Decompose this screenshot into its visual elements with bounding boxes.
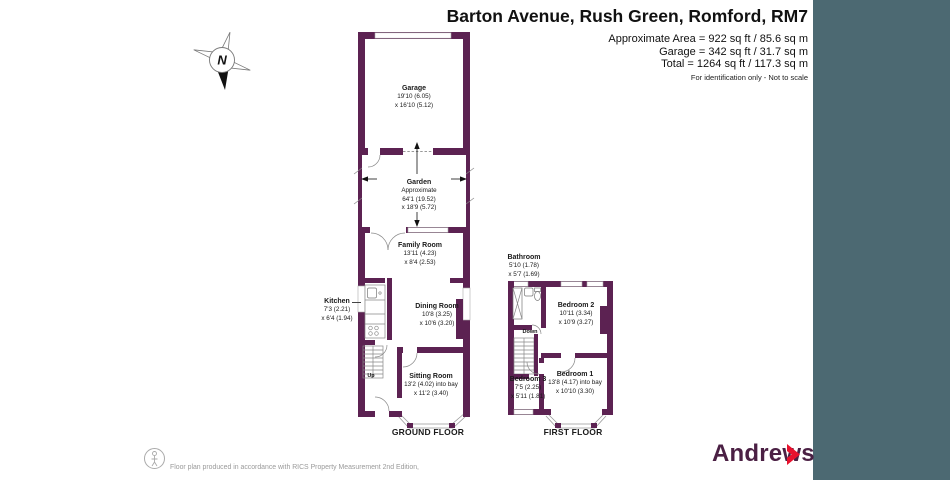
andrews-chevron-icon bbox=[787, 444, 804, 466]
first-floor-plan bbox=[503, 276, 618, 436]
rics-measurement-icon bbox=[143, 447, 166, 470]
stairs-up-label: Up bbox=[367, 373, 374, 379]
sitting-room-label: Sitting Room 13'2 (4.02) into bay x 11'2… bbox=[404, 372, 458, 398]
first-floor-caption: FIRST FLOOR bbox=[544, 427, 603, 437]
bathroom-label: Bathroom 5'10 (1.78) x 5'7 (1.69) bbox=[507, 253, 540, 279]
kitchen-leader-line bbox=[352, 302, 361, 303]
total-area: Total = 1264 sq ft / 117.3 sq m bbox=[608, 58, 808, 71]
ground-floor-caption: GROUND FLOOR bbox=[392, 427, 464, 437]
bay-window-first bbox=[544, 409, 613, 428]
bedroom3-label: Bedroom 3 7'5 (2.25) x 5'11 (1.81) bbox=[510, 375, 547, 401]
stairs-down bbox=[514, 338, 534, 374]
scale-disclaimer: For identification only - Not to scale bbox=[691, 73, 808, 82]
kitchen-units bbox=[365, 285, 385, 338]
family-room-label: Family Room 13'11 (4.23) x 8'4 (2.53) bbox=[398, 241, 442, 267]
kitchen-label: Kitchen 7'3 (2.21) x 6'4 (1.94) bbox=[321, 297, 352, 323]
floorplan-page: Barton Avenue, Rush Green, Romford, RM7 … bbox=[0, 0, 950, 480]
area-summary: Approximate Area = 922 sq ft / 85.6 sq m… bbox=[608, 33, 808, 71]
garage-label: Garage 19'10 (6.05) x 16'10 (5.12) bbox=[395, 84, 433, 110]
footer-disclaimer: Floor plan produced in accordance with R… bbox=[170, 447, 482, 480]
garage-area: Garage = 342 sq ft / 31.7 sq m bbox=[608, 46, 808, 59]
approximate-area: Approximate Area = 922 sq ft / 85.6 sq m bbox=[608, 33, 808, 46]
compass-north-label: N bbox=[217, 53, 227, 68]
bedroom2-label: Bedroom 2 10'11 (3.34) x 10'9 (3.27) bbox=[558, 301, 595, 327]
side-panel bbox=[813, 0, 950, 480]
bathroom-fixtures bbox=[513, 288, 541, 319]
bedroom1-label: Bedroom 1 13'8 (4.17) into bay x 10'10 (… bbox=[548, 370, 602, 396]
stairs-down-label: Down bbox=[523, 329, 538, 335]
page-title: Barton Avenue, Rush Green, Romford, RM7 bbox=[447, 6, 808, 27]
garden-label: Garden Approximate 64'1 (19.52) x 18'9 (… bbox=[401, 178, 436, 212]
compass-rose-icon: N bbox=[188, 26, 256, 92]
bay-window-ground bbox=[395, 411, 470, 428]
dining-room-label: Dining Room 10'8 (3.25) x 10'6 (3.20) bbox=[415, 302, 459, 328]
